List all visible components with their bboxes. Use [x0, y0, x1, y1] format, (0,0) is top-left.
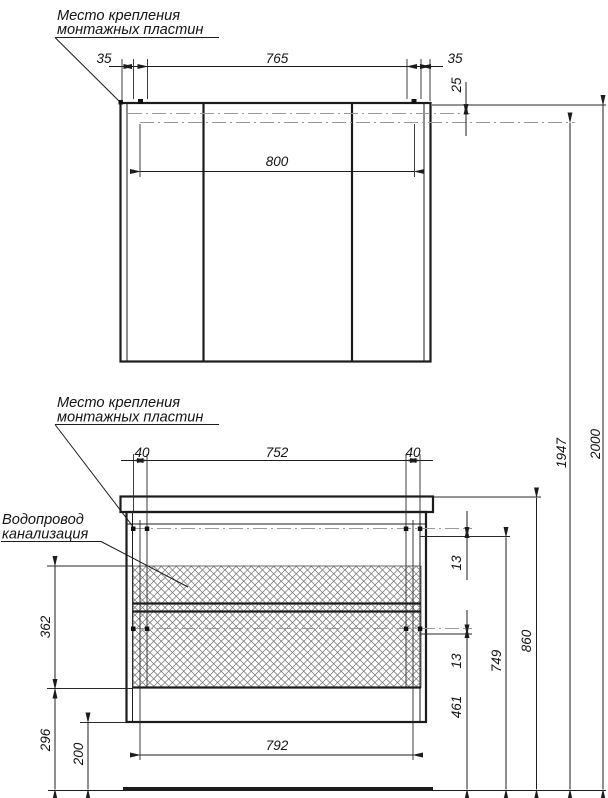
drawing-svg: Место крепления монтажных пластин 35 765…: [0, 0, 608, 798]
dim-296: 296: [38, 728, 53, 752]
plate-dot-lr-a: [404, 627, 409, 632]
dim-860: 860: [519, 629, 534, 652]
dim-35-right: 35: [447, 51, 463, 66]
dim-461: 461: [449, 696, 464, 719]
plumbing-label-line2: канализация: [2, 527, 89, 543]
dim-right-stack: 13 13 461 749 860: [434, 497, 541, 789]
mirror-mounting-plate-right-dot: [412, 99, 417, 104]
plate-dot-ul-b: [145, 527, 150, 532]
dim-1947: 1947: [554, 437, 569, 468]
dim-749: 749: [489, 649, 504, 672]
mirror-mounting-label: Место крепления монтажных пластин: [55, 8, 219, 105]
mirror-cabinet: [121, 99, 576, 362]
dim-2000: 2000: [588, 428, 603, 460]
dim-765: 765: [266, 51, 289, 66]
dim-left-stack: 362 296 200: [38, 566, 132, 789]
dim-overall-heights: 2000 1947: [432, 105, 606, 789]
dim-362: 362: [38, 615, 53, 638]
dim-plate-drop: 25: [449, 77, 466, 136]
dim-792: 792: [266, 738, 289, 753]
dim-mirror-width: 800: [140, 124, 415, 177]
dim-25: 25: [449, 77, 464, 94]
dim-mirror-top: 35 765 35: [96, 51, 463, 101]
base-mounting-label: Место крепления монтажных пластин: [55, 395, 219, 528]
dim-13-lower: 13: [449, 653, 464, 669]
plate-dot-ll-a: [131, 627, 136, 632]
floor: [48, 789, 606, 791]
base-mounting-label-line2: монтажных пластин: [57, 410, 203, 426]
dim-800: 800: [266, 154, 289, 169]
plate-dot-ll-b: [145, 627, 150, 632]
dim-200: 200: [71, 742, 86, 766]
dim-13-upper: 13: [449, 555, 464, 571]
dim-35-left: 35: [96, 51, 112, 66]
dim-40-right: 40: [405, 445, 421, 460]
mirror-mounting-label-line2: монтажных пластин: [57, 22, 203, 38]
dim-40-left: 40: [134, 445, 150, 460]
mirror-mounting-plate-left-dot: [138, 99, 143, 104]
dim-bottom-width: 792: [141, 738, 413, 755]
plumbing-access-hatch-area: [133, 566, 421, 688]
mirror-cabinet-body: [121, 103, 431, 362]
dim-base-top: 40 752 40: [121, 445, 433, 461]
plate-dot-lr-b: [418, 627, 423, 632]
technical-drawing-canvas: Место крепления монтажных пластин 35 765…: [0, 0, 608, 798]
plate-dot-ur-a: [404, 527, 409, 532]
countertop: [121, 497, 434, 513]
mirror-mounting-leader-line: [55, 38, 120, 103]
dim-752: 752: [266, 445, 289, 460]
plate-dot-ur-b: [418, 527, 423, 532]
